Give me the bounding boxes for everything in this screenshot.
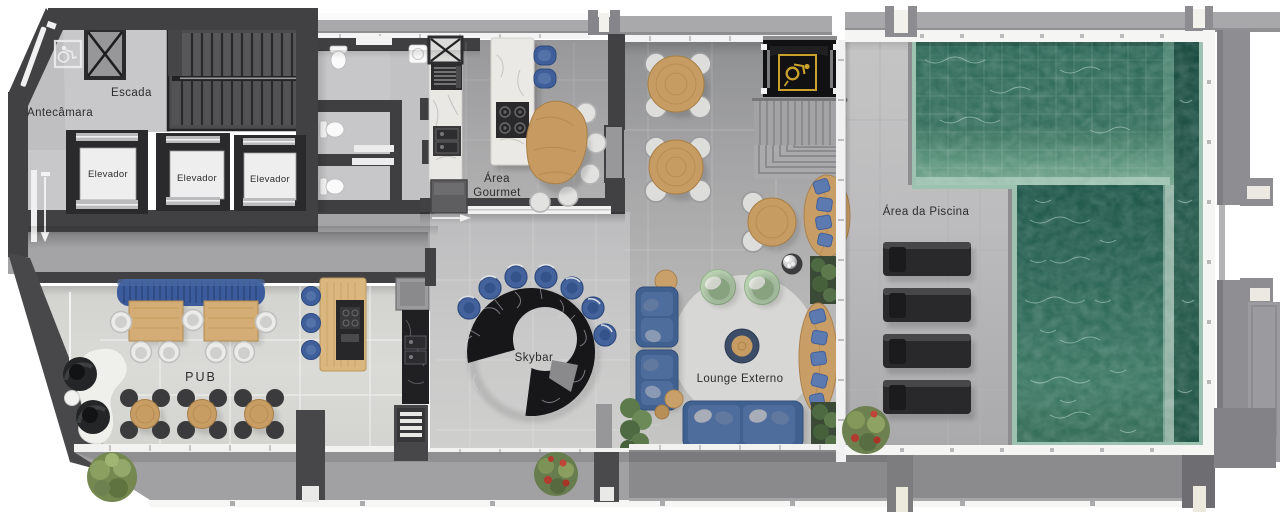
svg-text:Gourmet: Gourmet [473, 187, 521, 199]
svg-text:Área: Área [484, 172, 510, 185]
svg-text:Lounge Externo: Lounge Externo [697, 373, 784, 385]
svg-text:Elevador: Elevador [177, 173, 217, 184]
svg-text:PUB: PUB [185, 370, 217, 384]
svg-text:Elevador: Elevador [250, 174, 290, 185]
svg-text:Antecâmara: Antecâmara [27, 107, 93, 119]
svg-text:Área da Piscina: Área da Piscina [883, 205, 970, 218]
svg-text:Skybar: Skybar [515, 352, 554, 364]
svg-text:Escada: Escada [111, 87, 152, 99]
svg-text:Elevador: Elevador [88, 169, 128, 180]
